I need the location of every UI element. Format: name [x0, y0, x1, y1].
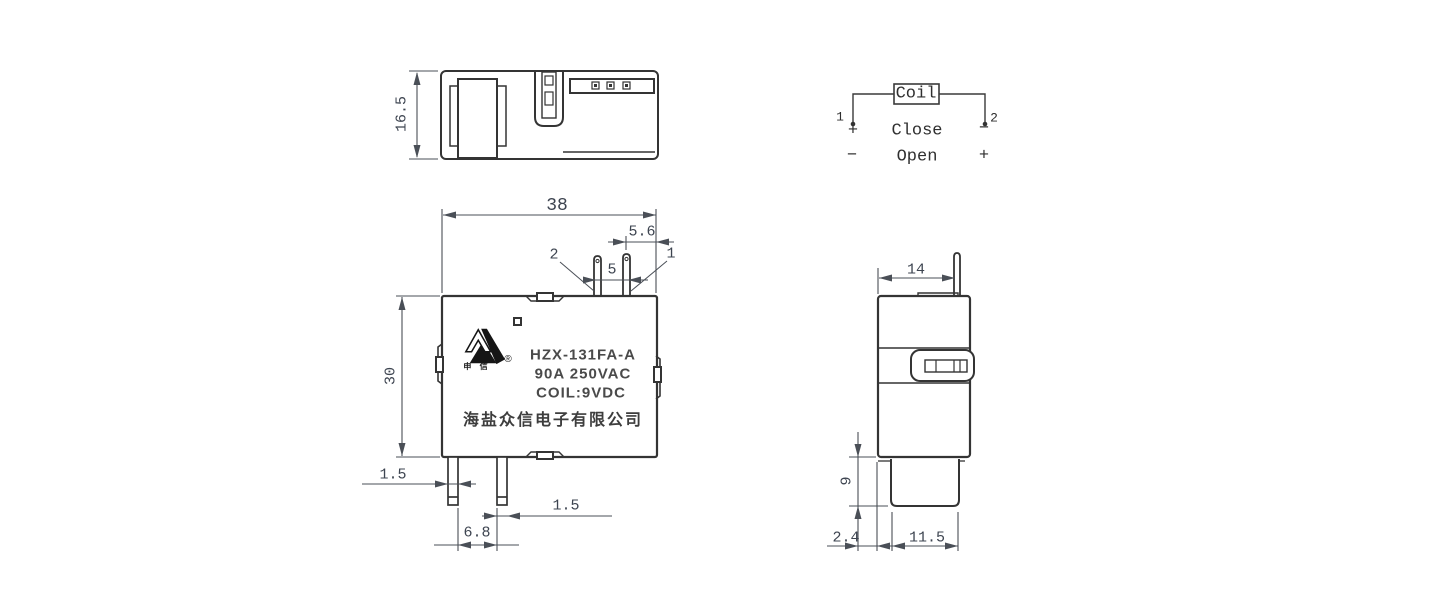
close-polarity-left: +	[848, 123, 858, 140]
relay-coil-spec: COIL:9VDC	[536, 386, 626, 401]
dim-left-pin-width: 1.5	[379, 468, 406, 483]
registered-trademark-icon: ®	[504, 355, 511, 365]
dim-pin-to-edge: 5.6	[628, 225, 655, 240]
dim-side-width: 14	[907, 263, 925, 278]
dim-base-width: 11.5	[909, 531, 945, 546]
dim-right-pin-width: 1.5	[552, 499, 579, 514]
relay-contact-rating: 90A 250VAC	[535, 367, 632, 382]
dim-side-offset: 2.4	[832, 531, 859, 546]
open-polarity-left: −	[847, 148, 857, 165]
dim-pin-spacing: 6.8	[463, 526, 490, 541]
coil-pin-number-1: 1	[666, 247, 675, 262]
schematic-terminal-1: 1	[836, 111, 844, 124]
side-view-dimensions	[827, 268, 958, 551]
dim-pin-pitch: 5	[607, 263, 616, 278]
coil-pin-number-2: 2	[549, 248, 558, 263]
dim-front-height: 30	[384, 367, 399, 385]
drawing-linework	[0, 0, 1440, 600]
schematic-terminal-2: 2	[990, 112, 998, 125]
open-label: Open	[897, 149, 938, 166]
coil-box-label: Coil	[896, 86, 937, 103]
top-view-dimension-16-5	[409, 71, 438, 159]
dim-front-width: 38	[546, 197, 568, 215]
manufacturer-name: 海盐众信电子有限公司	[463, 413, 643, 429]
relay-datasheet-drawing: 16.5 Coil 1 2 + Close − − Open + 38 5.6 …	[0, 0, 1440, 600]
manufacturer-logo	[462, 326, 506, 366]
logo-caption: 申 信	[463, 363, 490, 371]
side-view-geometry	[878, 253, 974, 506]
close-polarity-right: −	[979, 121, 989, 138]
top-view-geometry	[441, 71, 658, 159]
close-label: Close	[891, 123, 942, 140]
dim-base-height: 9	[840, 476, 855, 485]
relay-model-number: HZX-131FA-A	[530, 348, 636, 363]
dim-top-height: 16.5	[395, 96, 410, 132]
open-polarity-right: +	[979, 148, 989, 165]
